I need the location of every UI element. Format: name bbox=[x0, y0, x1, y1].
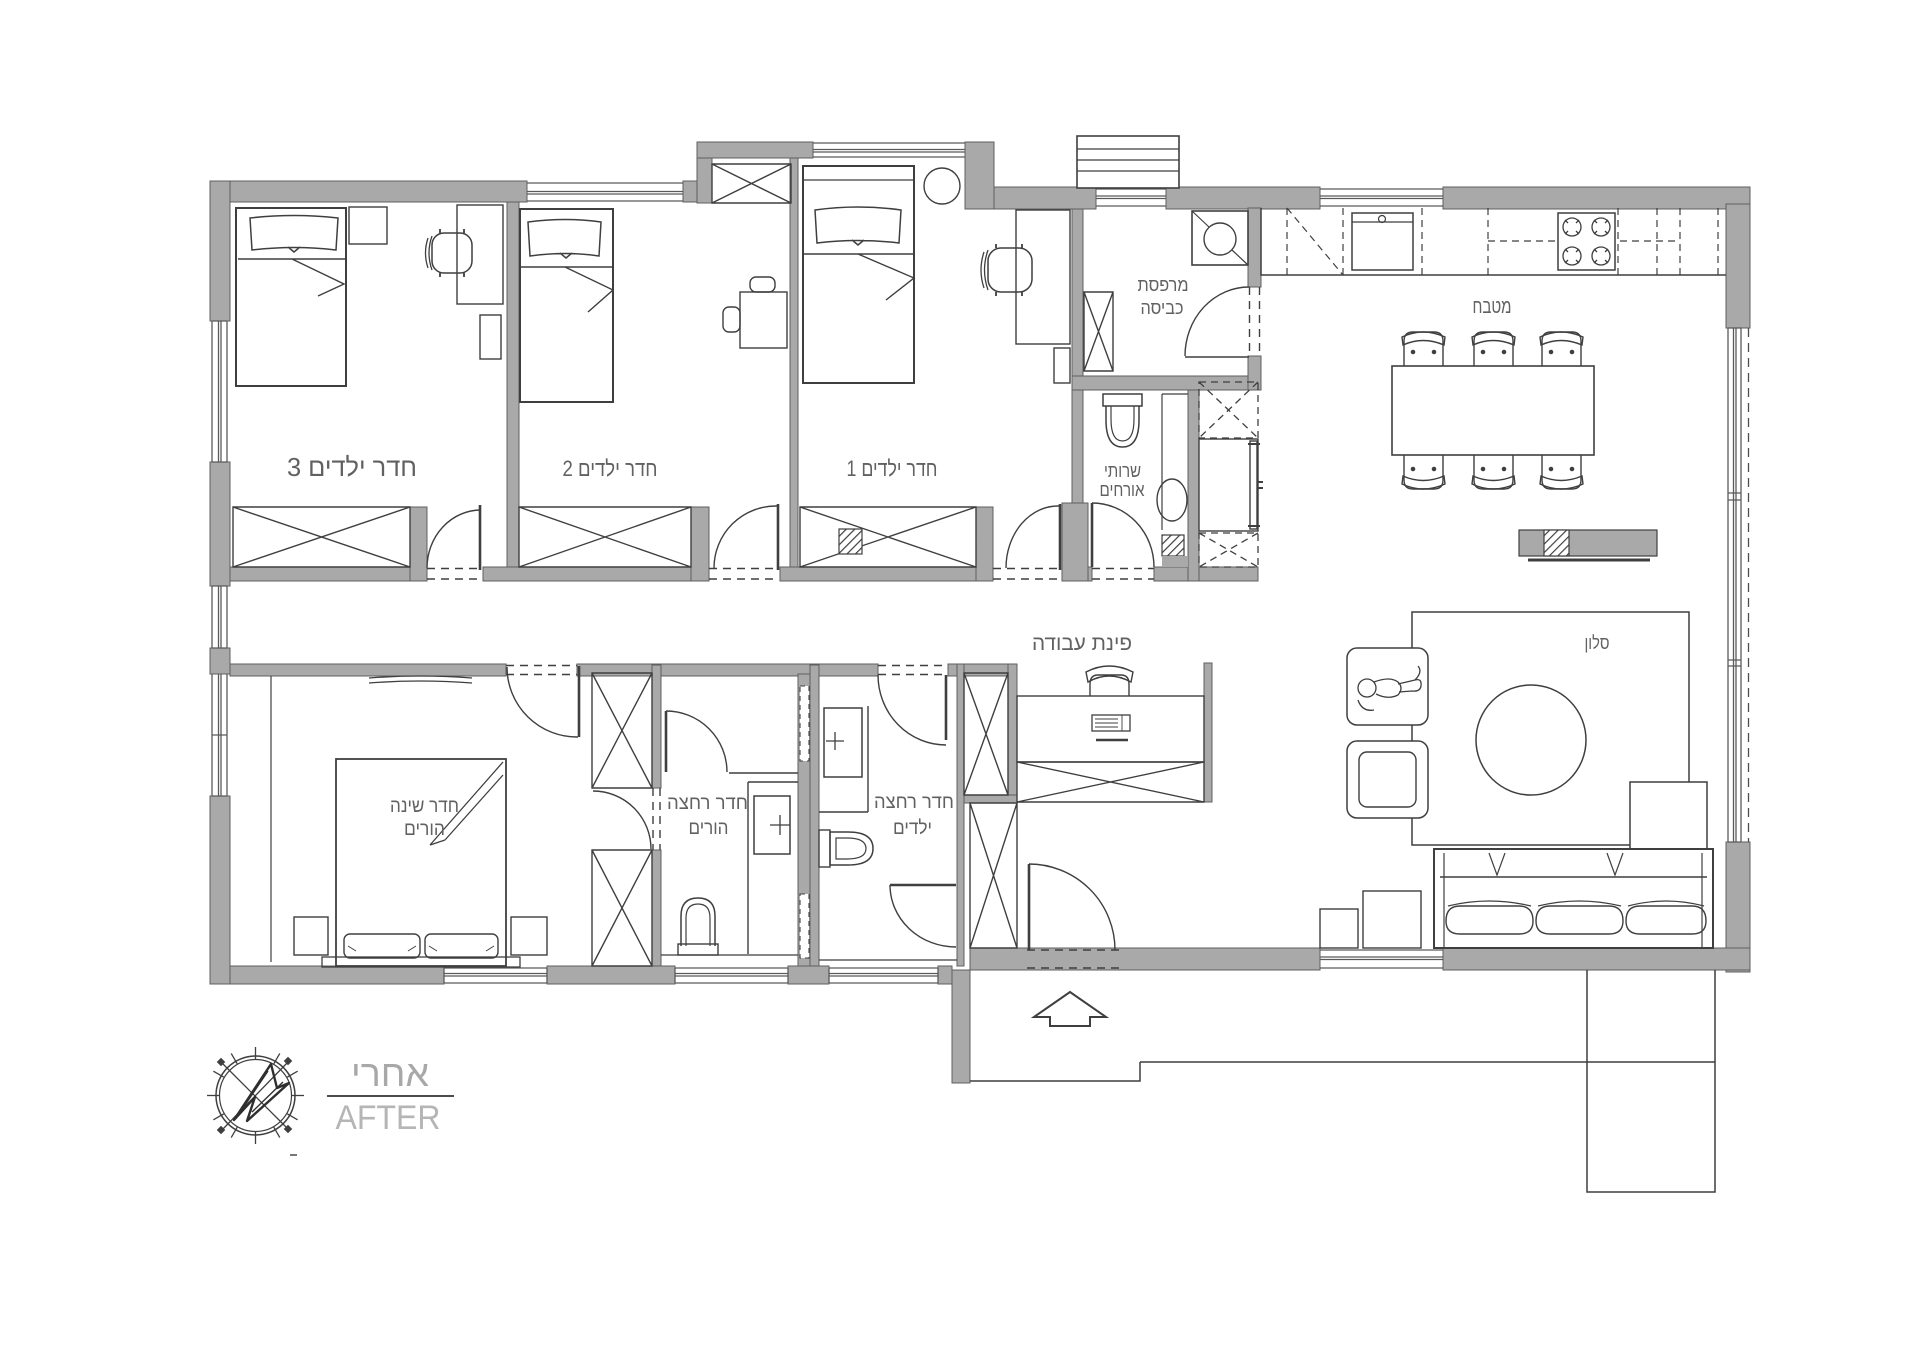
svg-text:סלון: סלון bbox=[1585, 633, 1610, 653]
svg-text:הורים: הורים bbox=[689, 818, 729, 839]
svg-text:ילדים: ילדים bbox=[893, 818, 932, 839]
svg-text:שרותי: שרותי bbox=[1104, 461, 1141, 481]
svg-text:חדר שינה: חדר שינה bbox=[390, 796, 459, 817]
svg-text:כביסה: כביסה bbox=[1141, 298, 1184, 318]
svg-text:אורחים: אורחים bbox=[1100, 480, 1146, 500]
svg-text:חדר רחצה: חדר רחצה bbox=[874, 792, 954, 813]
svg-text:פינת עבודה: פינת עבודה bbox=[1032, 632, 1132, 655]
svg-text:מטבח: מטבח bbox=[1473, 296, 1512, 318]
svg-text:חדר רחצה: חדר רחצה bbox=[667, 793, 748, 814]
svg-text:אחרי: אחרי bbox=[351, 1053, 429, 1094]
svg-text:חדר ילדים 1: חדר ילדים 1 bbox=[847, 456, 938, 481]
svg-text:חדר ילדים 3: חדר ילדים 3 bbox=[287, 452, 417, 482]
svg-text:חדר ילדים 2: חדר ילדים 2 bbox=[563, 456, 658, 481]
svg-text:הורים: הורים bbox=[404, 819, 445, 840]
svg-text:מרפסת: מרפסת bbox=[1138, 275, 1189, 295]
svg-text:AFTER: AFTER bbox=[336, 1099, 441, 1137]
